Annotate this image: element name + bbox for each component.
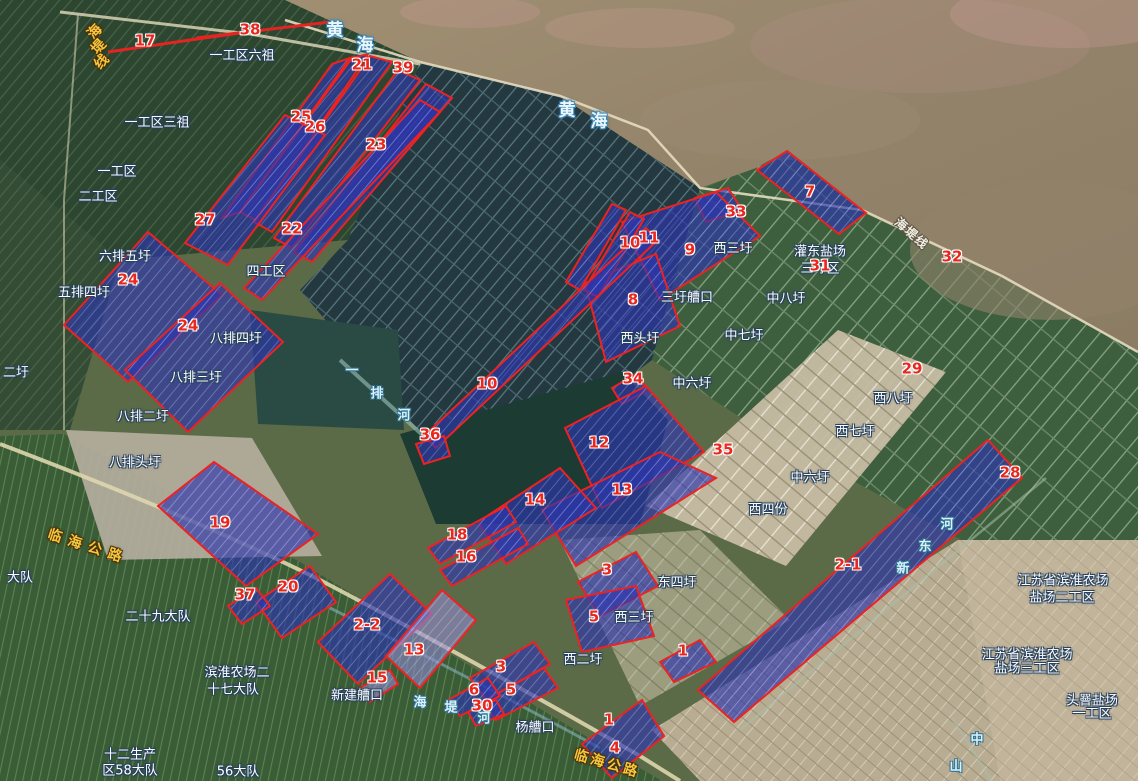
parcel-19[interactable] [158, 462, 318, 586]
parcel-7[interactable] [757, 151, 866, 234]
parcel-overlay [0, 0, 1138, 781]
parcel-38[interactable] [196, 22, 330, 38]
satellite-map-view[interactable]: ; 一工区六祖一工区三祖一工区二工区四工区六排五圩五排四圩八排四圩八排三圩八排二… [0, 0, 1138, 781]
parcel-1a[interactable] [660, 640, 716, 682]
parcel-2-1[interactable] [698, 440, 1022, 722]
parcel-37[interactable] [228, 588, 270, 624]
parcel-1-4[interactable] [582, 700, 664, 778]
parcel-36[interactable] [416, 436, 450, 464]
